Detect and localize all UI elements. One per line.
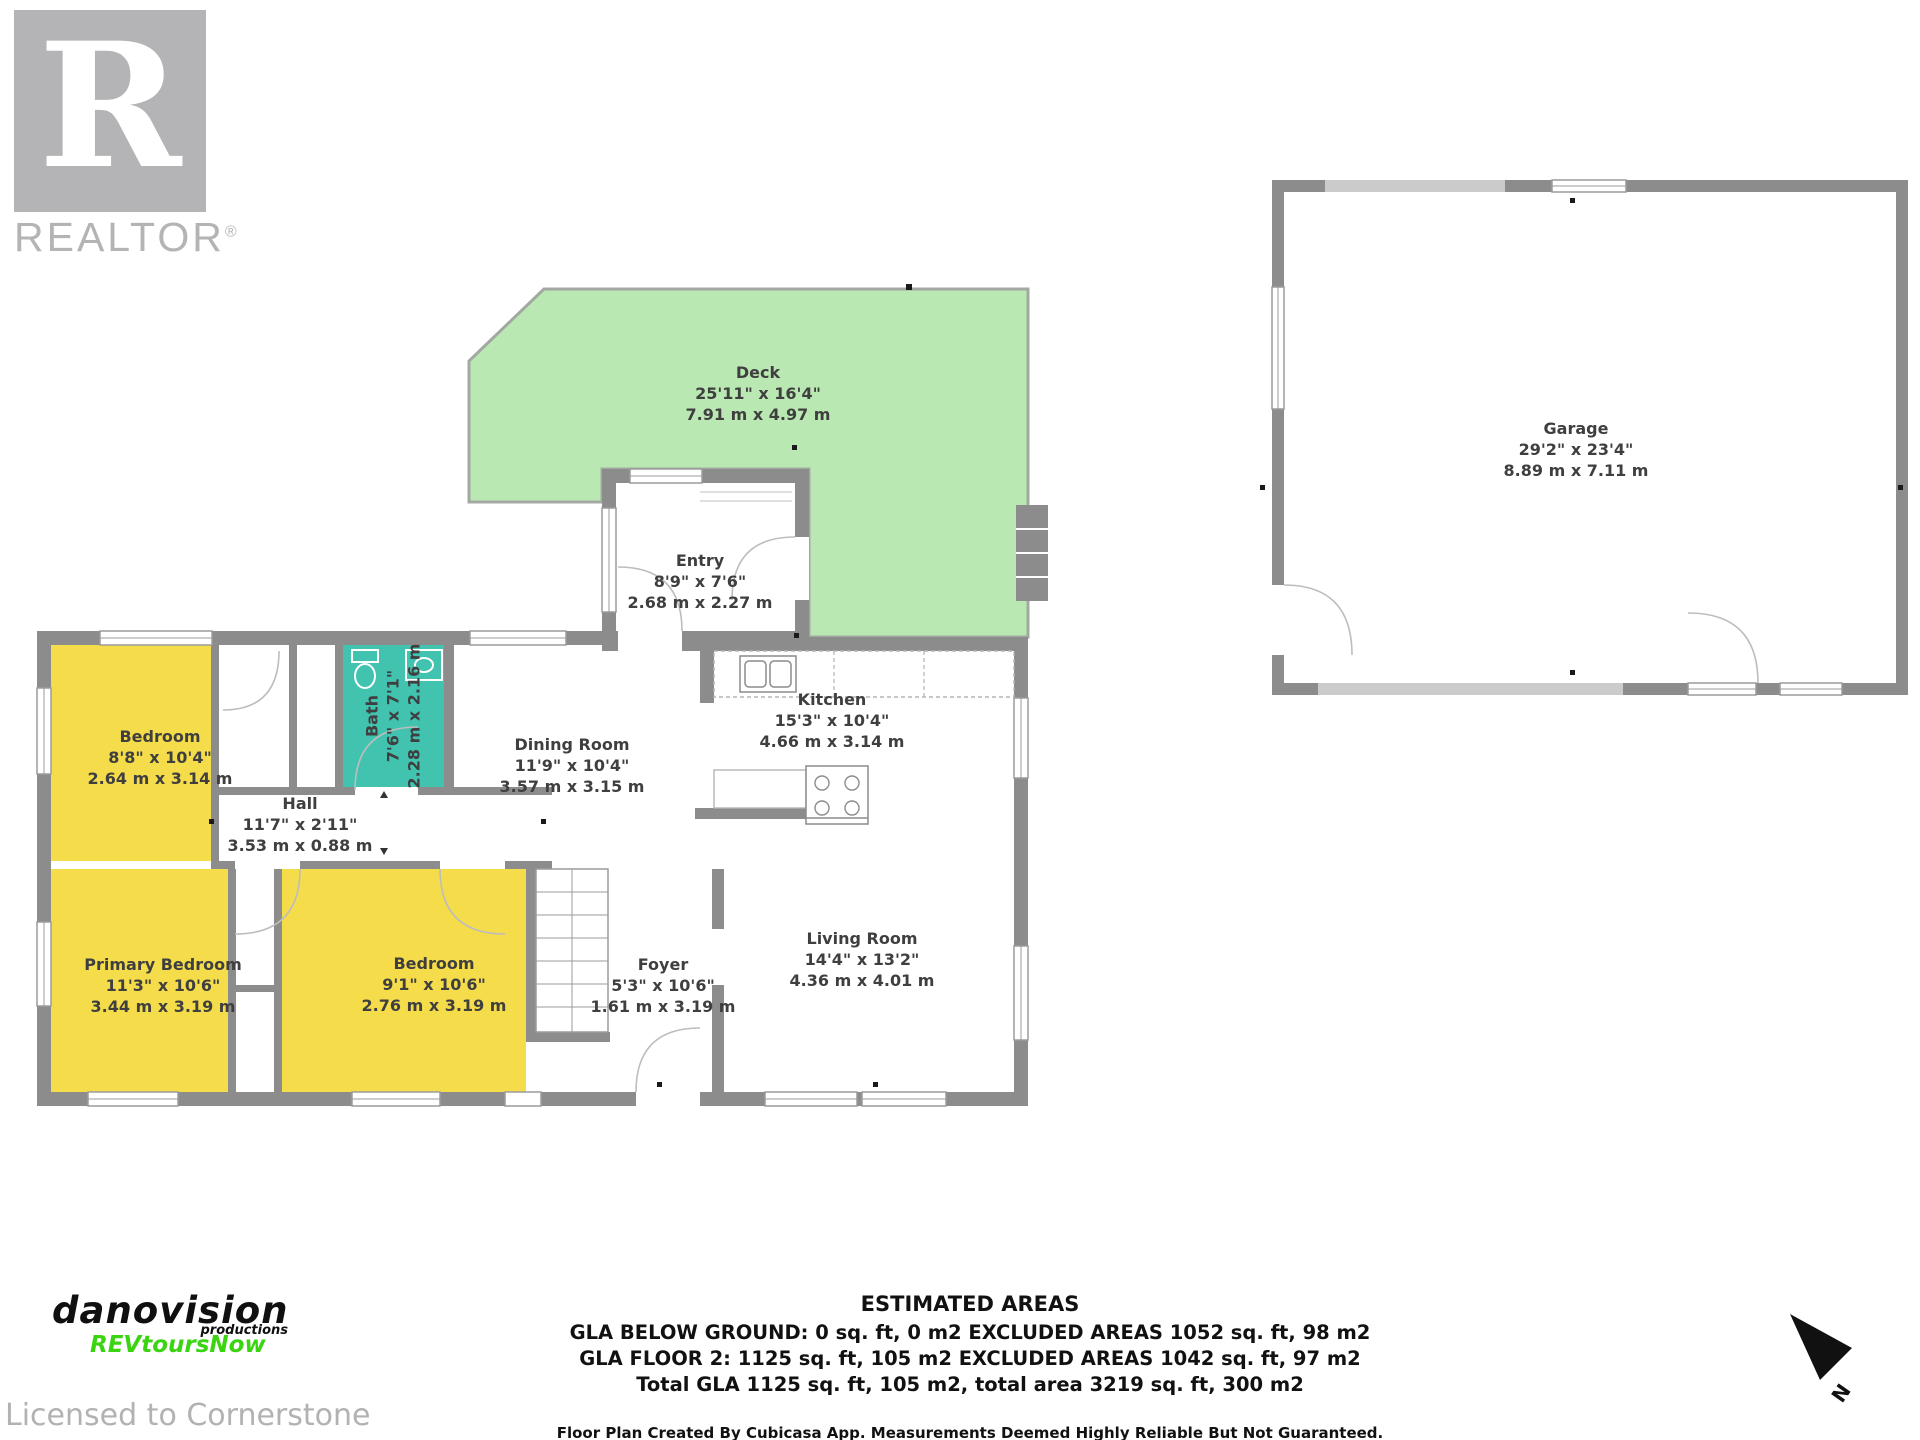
total-gla-line: Total GLA 1125 sq. ft, 105 m2, total are… bbox=[410, 1372, 1530, 1398]
room-dim-metric: 4.36 m x 4.01 m bbox=[790, 970, 935, 991]
north-label: N bbox=[1826, 1379, 1855, 1406]
room-dim-metric: 3.57 m x 3.15 m bbox=[500, 776, 645, 797]
room-dim-imperial: 8'8" x 10'4" bbox=[88, 747, 233, 768]
room-label-garage: Garage 29'2" x 23'4" 8.89 m x 7.11 m bbox=[1504, 418, 1649, 481]
room-name: Kitchen bbox=[760, 689, 905, 710]
room-label-deck: Deck 25'11" x 16'4" 7.91 m x 4.97 m bbox=[686, 362, 831, 425]
estimated-areas-title: ESTIMATED AREAS bbox=[410, 1292, 1530, 1316]
floor-plan-canvas bbox=[0, 0, 1920, 1440]
entry-closet-lines bbox=[700, 492, 792, 501]
room-name: Garage bbox=[1504, 418, 1649, 439]
room-name: Living Room bbox=[790, 928, 935, 949]
room-dim-metric: 3.44 m x 3.19 m bbox=[84, 996, 242, 1017]
room-label-bath: Bath 7'6" x 7'1" 2.28 m x 2.16 m bbox=[362, 644, 425, 789]
deck-steps bbox=[1016, 505, 1048, 601]
room-dim-metric: 2.68 m x 2.27 m bbox=[628, 592, 773, 613]
room-dim-metric: 7.91 m x 4.97 m bbox=[686, 404, 831, 425]
room-name: Hall bbox=[228, 793, 373, 814]
room-name: Bath bbox=[362, 644, 383, 789]
licensed-to-text: Licensed to Cornerstone bbox=[5, 1398, 370, 1433]
room-dim-metric: 1.61 m x 3.19 m bbox=[591, 996, 736, 1017]
room-dim-imperial: 11'7" x 2'11" bbox=[228, 814, 373, 835]
room-dim-metric: 2.76 m x 3.19 m bbox=[362, 995, 507, 1016]
room-label-kitchen: Kitchen 15'3" x 10'4" 4.66 m x 3.14 m bbox=[760, 689, 905, 752]
room-dim-imperial: 9'1" x 10'6" bbox=[362, 974, 507, 995]
room-dim-imperial: 11'3" x 10'6" bbox=[84, 975, 242, 996]
room-dim-imperial: 25'11" x 16'4" bbox=[686, 383, 831, 404]
room-dim-metric: 2.64 m x 3.14 m bbox=[88, 768, 233, 789]
room-dim-imperial: 7'6" x 7'1" bbox=[383, 644, 404, 789]
room-dim-imperial: 5'3" x 10'6" bbox=[591, 975, 736, 996]
hall-arrow-down bbox=[380, 848, 388, 855]
estimated-areas-block: ESTIMATED AREAS GLA BELOW GROUND: 0 sq. … bbox=[410, 1292, 1530, 1440]
room-label-dining-room: Dining Room 11'9" x 10'4" 3.57 m x 3.15 … bbox=[500, 734, 645, 797]
room-name: Foyer bbox=[591, 954, 736, 975]
room-dim-imperial: 8'9" x 7'6" bbox=[628, 571, 773, 592]
room-dim-metric: 4.66 m x 3.14 m bbox=[760, 731, 905, 752]
gla-below-ground-line: GLA BELOW GROUND: 0 sq. ft, 0 m2 EXCLUDE… bbox=[410, 1320, 1530, 1346]
room-name: Bedroom bbox=[88, 726, 233, 747]
room-dim-imperial: 29'2" x 23'4" bbox=[1504, 439, 1649, 460]
gla-floor2-line: GLA FLOOR 2: 1125 sq. ft, 105 m2 EXCLUDE… bbox=[410, 1346, 1530, 1372]
room-label-entry: Entry 8'9" x 7'6" 2.68 m x 2.27 m bbox=[628, 550, 773, 613]
room-name: Bedroom bbox=[362, 953, 507, 974]
room-dim-metric: 8.89 m x 7.11 m bbox=[1504, 460, 1649, 481]
danovision-logo: danovision productions REVtoursNow bbox=[52, 1294, 292, 1356]
floor-plan-disclaimer: Floor Plan Created By Cubicasa App. Meas… bbox=[410, 1424, 1530, 1440]
revtoursnow-label: REVtoursNow bbox=[90, 1334, 292, 1356]
room-name: Entry bbox=[628, 550, 773, 571]
room-label-foyer: Foyer 5'3" x 10'6" 1.61 m x 3.19 m bbox=[591, 954, 736, 1017]
room-label-bedroom-2: Bedroom 9'1" x 10'6" 2.76 m x 3.19 m bbox=[362, 953, 507, 1016]
room-label-primary-bedroom: Primary Bedroom 11'3" x 10'6" 3.44 m x 3… bbox=[84, 954, 242, 1017]
room-dim-imperial: 15'3" x 10'4" bbox=[760, 710, 905, 731]
room-label-hall: Hall 11'7" x 2'11" 3.53 m x 0.88 m bbox=[228, 793, 373, 856]
room-name: Dining Room bbox=[500, 734, 645, 755]
kitchen-sink-icon bbox=[740, 656, 796, 692]
room-dim-metric: 2.28 m x 2.16 m bbox=[404, 644, 425, 789]
room-label-bedroom-1: Bedroom 8'8" x 10'4" 2.64 m x 3.14 m bbox=[88, 726, 233, 789]
floor-plan-page: R REALTOR® bbox=[0, 0, 1920, 1440]
room-dim-metric: 3.53 m x 0.88 m bbox=[228, 835, 373, 856]
room-name: Deck bbox=[686, 362, 831, 383]
room-name: Primary Bedroom bbox=[84, 954, 242, 975]
room-label-living-room: Living Room 14'4" x 13'2" 4.36 m x 4.01 … bbox=[790, 928, 935, 991]
room-dim-imperial: 14'4" x 13'2" bbox=[790, 949, 935, 970]
room-dim-imperial: 11'9" x 10'4" bbox=[500, 755, 645, 776]
